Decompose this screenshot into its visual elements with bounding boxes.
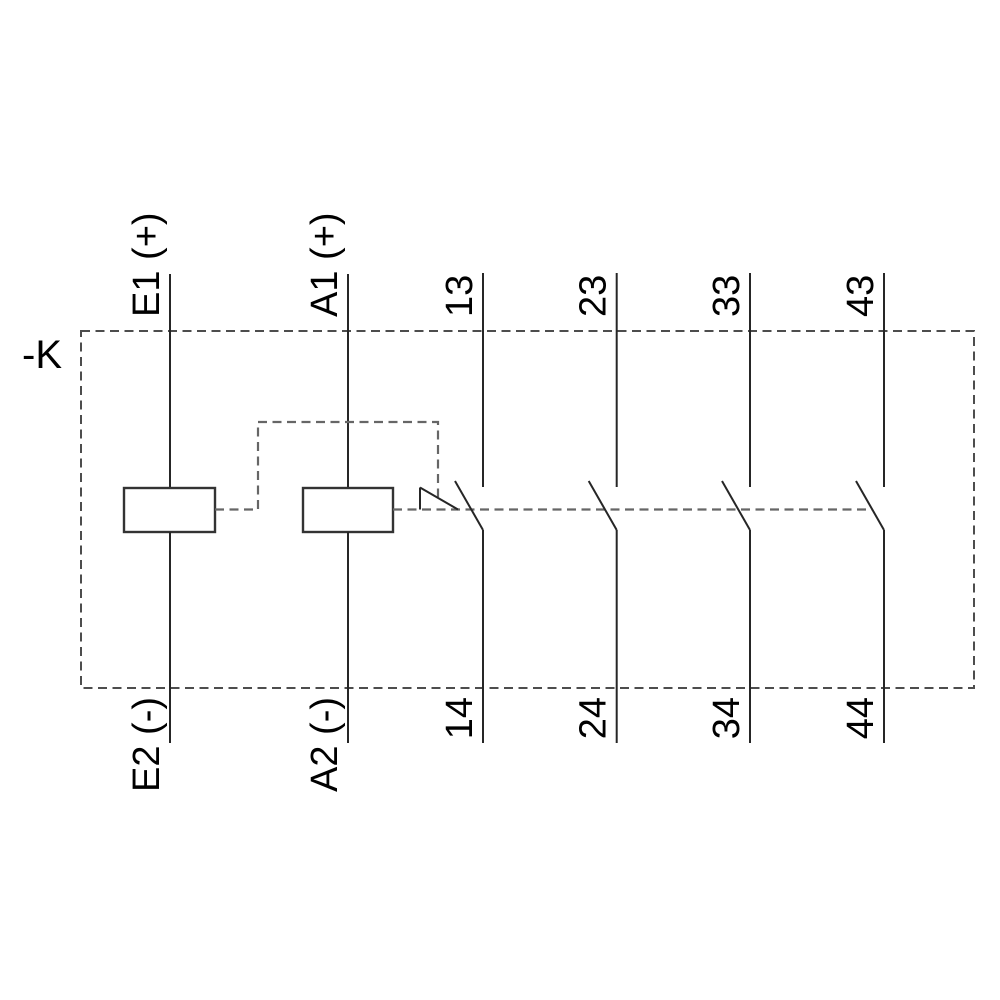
terminal-label-a1: A1 (+) [304, 212, 346, 317]
terminal-label-a2: A2 (-) [304, 697, 346, 792]
relay-schematic: -K E1 (+) E2 (-) A1 (+) A2 (-) [0, 0, 1000, 1000]
terminal-label-33: 33 [706, 275, 748, 317]
a-coil-branch: A1 (+) A2 (-) [303, 212, 393, 792]
device-designation-label: -K [22, 333, 62, 377]
e-coil-symbol [124, 488, 215, 532]
terminal-label-13: 13 [439, 275, 481, 317]
a-coil-symbol [303, 488, 393, 532]
no-contact-3: 33 34 [706, 273, 750, 743]
terminal-label-e1: E1 (+) [126, 212, 168, 317]
e-coil-branch: E1 (+) E2 (-) [124, 212, 215, 792]
no-contact-2: 23 24 [573, 273, 617, 743]
schematic-page: -K E1 (+) E2 (-) A1 (+) A2 (-) [0, 0, 1000, 1000]
terminal-label-44: 44 [840, 697, 882, 739]
contact-1-blade [455, 481, 483, 530]
no-contact-1: 13 14 [439, 273, 483, 743]
contact-3-blade [722, 481, 750, 530]
contact-4-blade [856, 481, 884, 530]
terminal-label-24: 24 [573, 697, 615, 739]
no-contact-4: 43 44 [840, 273, 884, 743]
contact-2-blade [589, 481, 617, 530]
terminal-label-14: 14 [439, 697, 481, 739]
terminal-label-e2: E2 (-) [126, 697, 168, 792]
terminal-label-34: 34 [706, 697, 748, 739]
terminal-label-23: 23 [573, 275, 615, 317]
terminal-label-43: 43 [840, 275, 882, 317]
